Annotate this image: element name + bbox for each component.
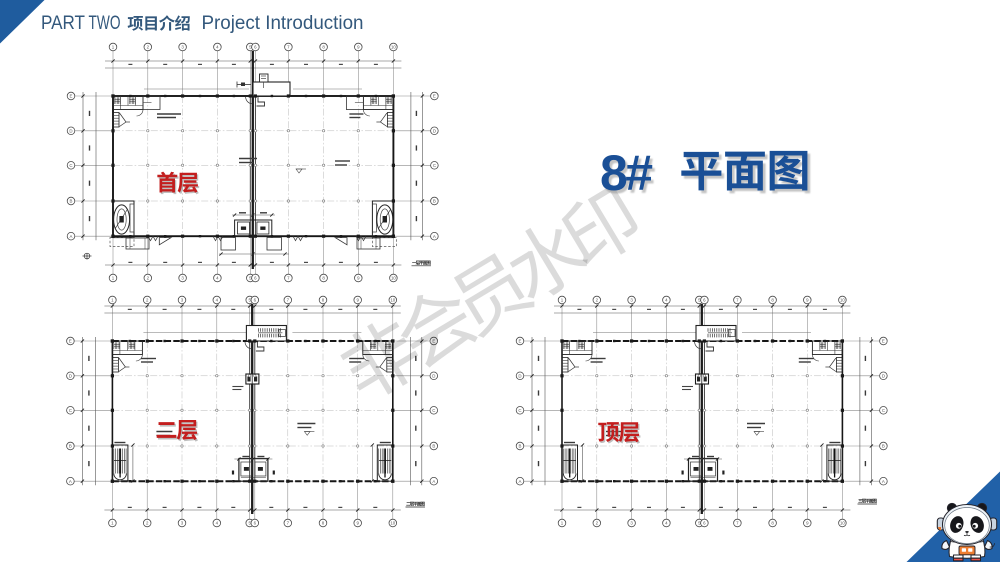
svg-text:10: 10: [840, 521, 845, 526]
svg-text:E: E: [882, 339, 885, 344]
svg-text:10: 10: [390, 298, 395, 303]
svg-text:Project Introduction: Project Introduction: [202, 13, 364, 34]
svg-text:A: A: [519, 479, 522, 484]
svg-text:10: 10: [840, 298, 845, 303]
svg-text:C: C: [432, 408, 435, 413]
svg-text:10: 10: [390, 521, 395, 526]
svg-text:E: E: [519, 339, 522, 344]
svg-text:A: A: [433, 234, 436, 239]
svg-text:C: C: [882, 408, 885, 413]
svg-text:D: D: [432, 373, 435, 378]
svg-text:D: D: [69, 128, 72, 133]
svg-text:A: A: [69, 479, 72, 484]
svg-text:B: B: [433, 199, 436, 204]
svg-text:B: B: [432, 444, 435, 449]
svg-text:B: B: [70, 199, 73, 204]
svg-text:10: 10: [391, 45, 396, 50]
svg-text:A: A: [70, 234, 73, 239]
svg-text:D: D: [518, 373, 521, 378]
svg-text:E: E: [69, 339, 72, 344]
svg-text:D: D: [69, 373, 72, 378]
svg-text:C: C: [69, 408, 72, 413]
svg-text:10: 10: [391, 276, 396, 281]
svg-text:C: C: [518, 408, 521, 413]
svg-text:A: A: [432, 479, 435, 484]
svg-text:D: D: [882, 373, 885, 378]
svg-text:E: E: [70, 94, 73, 99]
svg-text:PART: PART: [41, 13, 85, 34]
svg-text:E: E: [433, 94, 436, 99]
svg-text:8#: 8#: [600, 145, 653, 201]
svg-text:B: B: [519, 444, 522, 449]
svg-text:TWO: TWO: [89, 13, 121, 34]
svg-text:C: C: [433, 163, 436, 168]
svg-text:A: A: [882, 479, 885, 484]
svg-text:C: C: [69, 163, 72, 168]
svg-text:D: D: [433, 128, 436, 133]
svg-text:B: B: [882, 444, 885, 449]
svg-text:B: B: [69, 444, 72, 449]
